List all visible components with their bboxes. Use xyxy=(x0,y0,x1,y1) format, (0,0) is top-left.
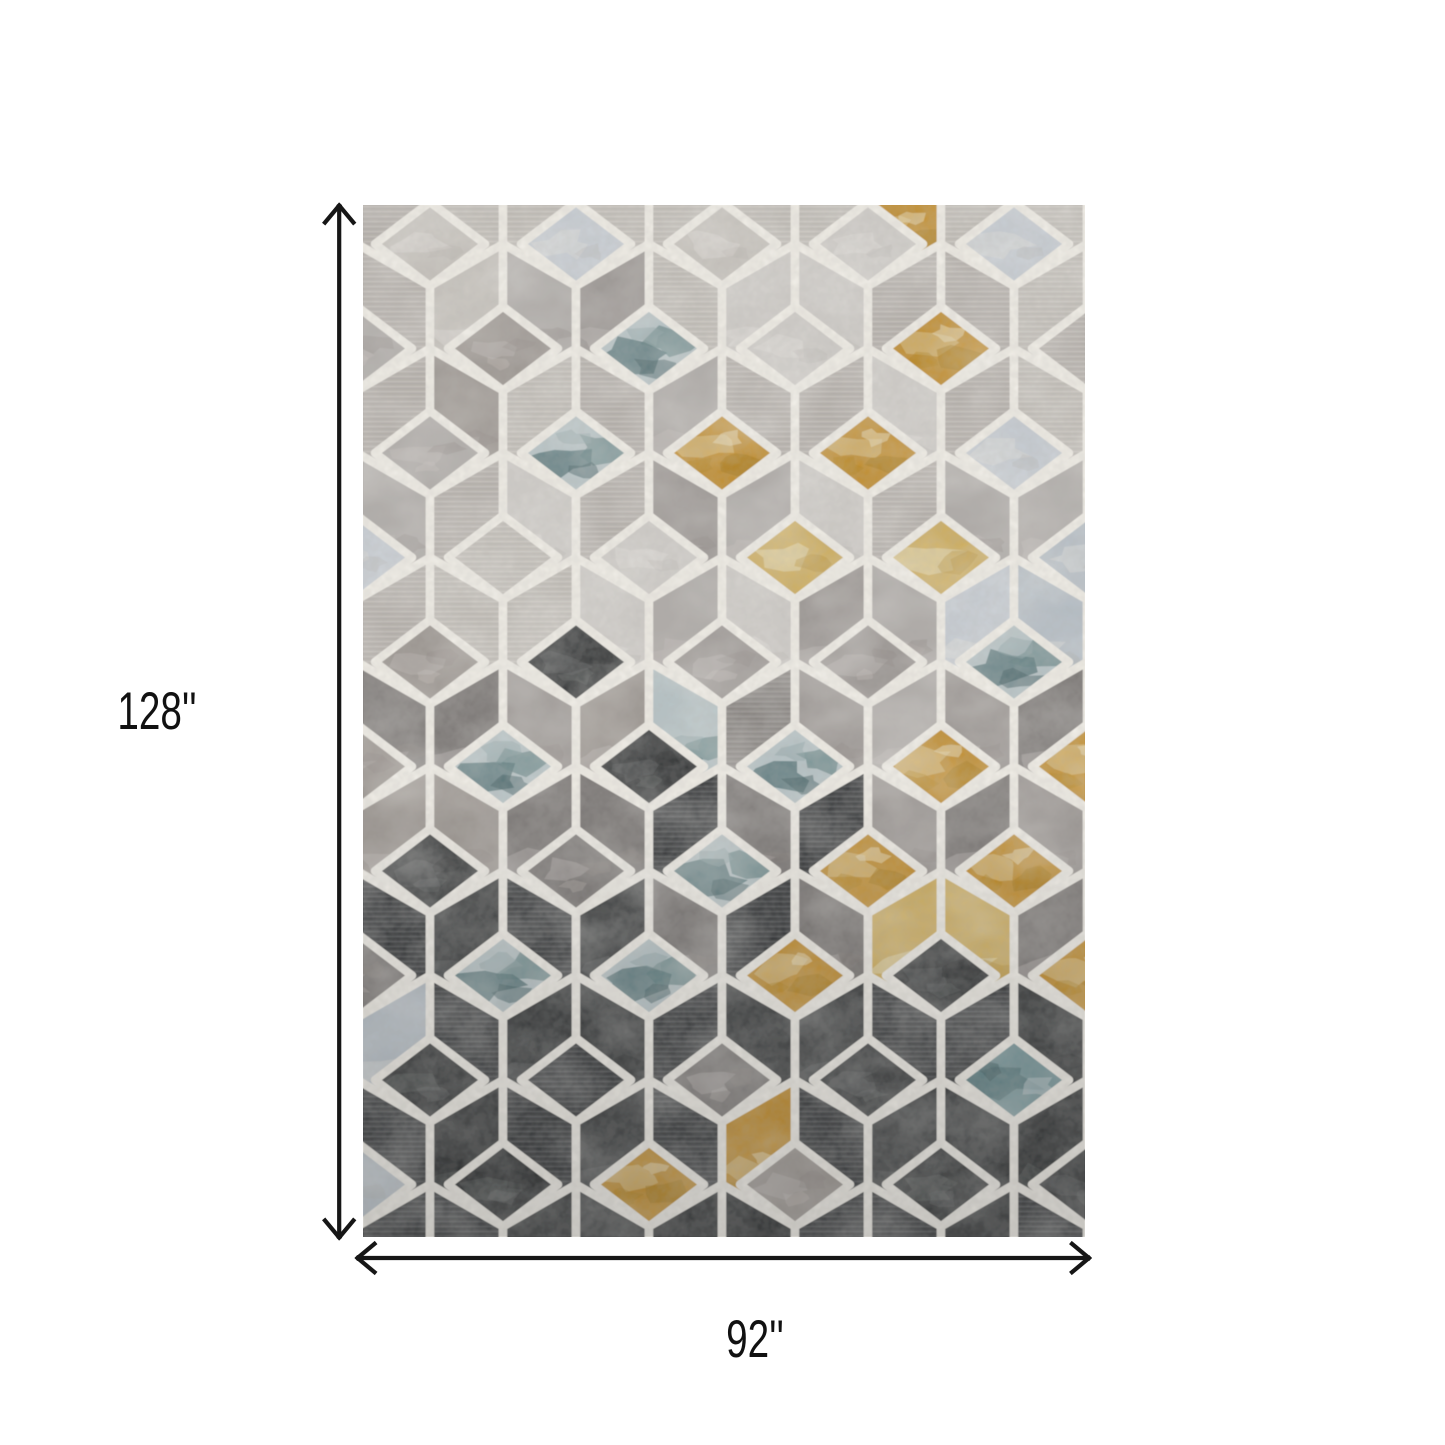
svg-text:92'': 92'' xyxy=(726,1309,784,1368)
svg-text:128'': 128'' xyxy=(117,681,196,740)
